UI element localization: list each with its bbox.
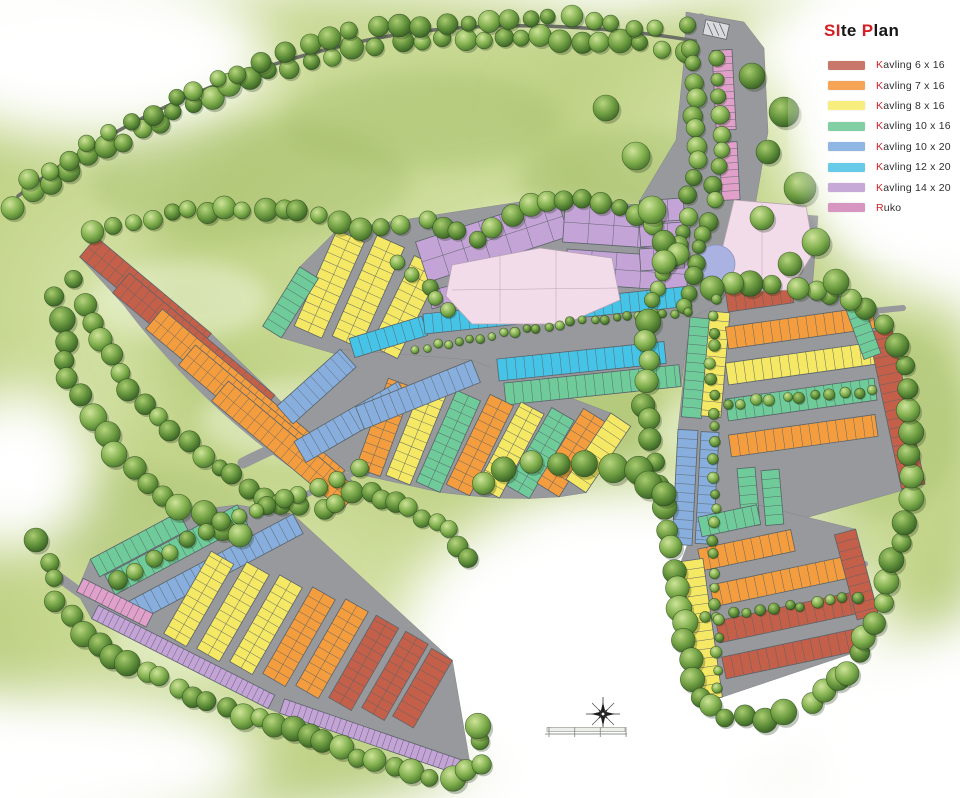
title-part: SI — [824, 21, 841, 40]
title-part: lan — [874, 21, 900, 40]
legend-item: Kavling 10 x 16 — [828, 116, 954, 136]
title-part: P — [862, 21, 874, 40]
legend-item: Kavling 7 x 16 — [828, 75, 954, 95]
legend-swatch — [828, 122, 865, 131]
legend-item: Kavling 10 x 20 — [828, 137, 954, 157]
legend-swatch — [828, 203, 865, 212]
site-plan-title: SItePlan — [824, 21, 954, 41]
legend-swatch — [828, 142, 865, 151]
legend-item: Ruko — [828, 198, 954, 218]
legend-item: Kavling 14 x 20 — [828, 177, 954, 197]
legend-swatch — [828, 101, 865, 110]
legend-label: Kavling 8 x 16 — [876, 100, 945, 112]
title-part: te — [841, 21, 857, 40]
legend-label: Kavling 7 x 16 — [876, 80, 945, 92]
legend-swatch — [828, 81, 865, 90]
legend-label: Kavling 12 x 20 — [876, 161, 951, 173]
legend-item: Kavling 12 x 20 — [828, 157, 954, 177]
legend-swatch — [828, 61, 865, 70]
site-plan-page: SItePlan Kavling 6 x 16Kavling 7 x 16Kav… — [0, 0, 960, 798]
legend-item: Kavling 6 x 16 — [828, 55, 954, 75]
legend-label: Kavling 14 x 20 — [876, 182, 951, 194]
legend-items: Kavling 6 x 16Kavling 7 x 16Kavling 8 x … — [828, 55, 954, 218]
legend-label: Kavling 10 x 16 — [876, 120, 951, 132]
legend-panel: SItePlan Kavling 6 x 16Kavling 7 x 16Kav… — [822, 21, 954, 218]
legend-swatch — [828, 163, 865, 172]
legend-label: Kavling 6 x 16 — [876, 59, 945, 71]
legend-item: Kavling 8 x 16 — [828, 96, 954, 116]
legend-swatch — [828, 183, 865, 192]
legend-label: Kavling 10 x 20 — [876, 141, 951, 153]
legend-label: Ruko — [876, 202, 901, 214]
